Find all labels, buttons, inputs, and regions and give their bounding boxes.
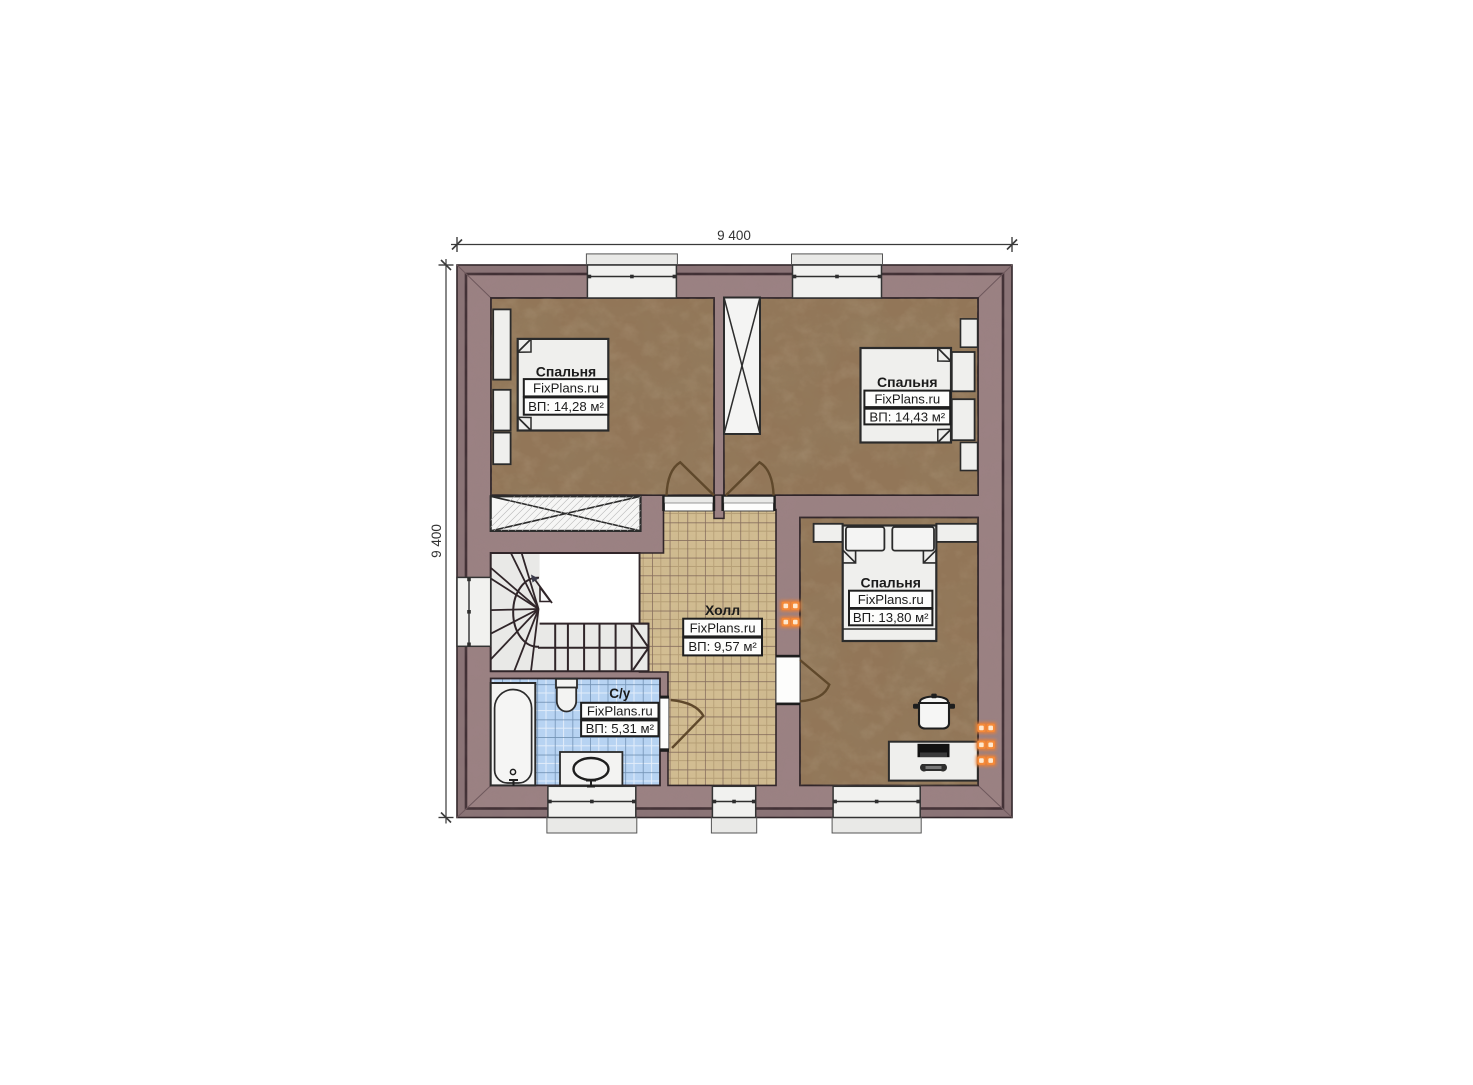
svg-text:FixPlans.ru: FixPlans.ru xyxy=(533,380,599,395)
svg-text:ВП: 14,28 м²: ВП: 14,28 м² xyxy=(528,399,604,414)
svg-text:9 400: 9 400 xyxy=(717,228,751,243)
svg-text:С/у: С/у xyxy=(609,686,631,701)
svg-text:Спальня: Спальня xyxy=(877,374,937,390)
svg-text:FixPlans.ru: FixPlans.ru xyxy=(690,620,756,635)
svg-text:Спальня: Спальня xyxy=(860,575,920,591)
svg-text:9 400: 9 400 xyxy=(429,524,444,558)
svg-text:Спальня: Спальня xyxy=(536,364,596,380)
svg-text:ВП: 14,43 м²: ВП: 14,43 м² xyxy=(869,409,945,424)
svg-text:ВП: 5,31 м²: ВП: 5,31 м² xyxy=(586,721,655,736)
svg-text:FixPlans.ru: FixPlans.ru xyxy=(874,392,940,407)
svg-text:ВП: 9,57 м²: ВП: 9,57 м² xyxy=(688,639,757,654)
svg-text:Холл: Холл xyxy=(705,602,740,618)
svg-text:ВП: 13,80 м²: ВП: 13,80 м² xyxy=(853,610,929,625)
svg-text:FixPlans.ru: FixPlans.ru xyxy=(858,592,924,607)
svg-text:FixPlans.ru: FixPlans.ru xyxy=(587,703,653,718)
